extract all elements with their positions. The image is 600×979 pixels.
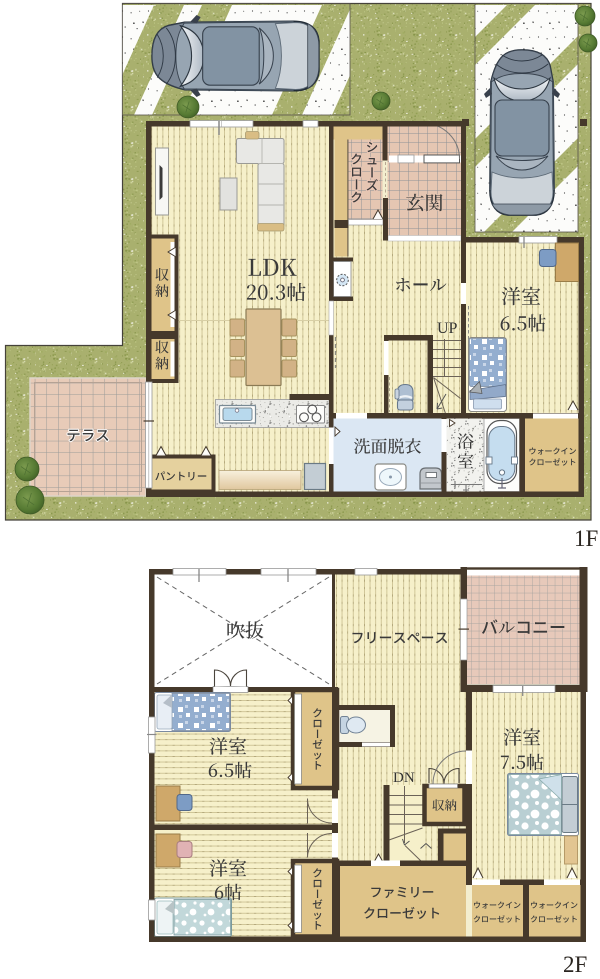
svg-text:UP: UP [437, 320, 458, 337]
svg-text:2F: 2F [563, 952, 587, 977]
svg-text:DN: DN [393, 770, 415, 786]
svg-text:1F: 1F [574, 526, 598, 551]
